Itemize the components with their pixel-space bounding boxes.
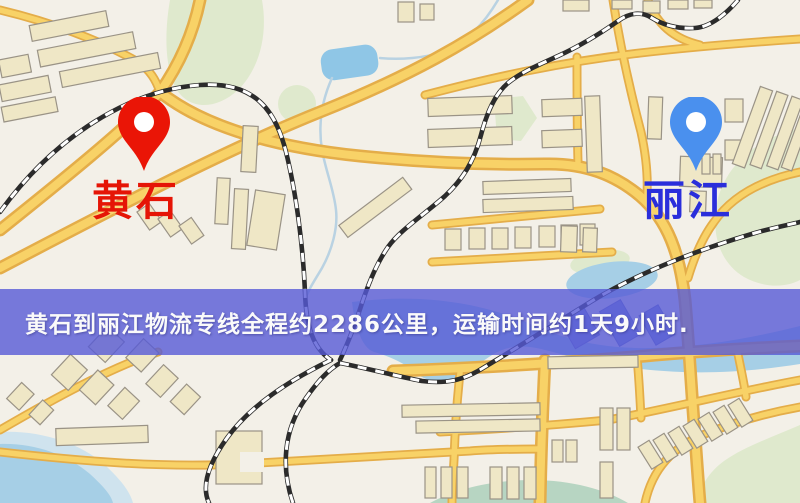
destination-pin-hole bbox=[686, 112, 706, 132]
destination-pin-body bbox=[670, 97, 722, 171]
destination-city-label: 丽江 bbox=[643, 180, 733, 222]
origin-pin-body bbox=[118, 97, 170, 171]
origin-city-label: 黄石 bbox=[92, 181, 180, 222]
map-canvas[interactable]: 黄石 丽江 黄石到丽江物流专线全程约2286公里，运输时间约1天9小时. bbox=[0, 0, 800, 503]
origin-pin-icon[interactable] bbox=[115, 97, 173, 171]
route-info-banner: 黄石到丽江物流专线全程约2286公里，运输时间约1天9小时. bbox=[0, 289, 800, 355]
map-art bbox=[0, 0, 800, 503]
route-info-text: 黄石到丽江物流专线全程约2286公里，运输时间约1天9小时. bbox=[0, 305, 689, 339]
origin-pin-hole bbox=[134, 112, 154, 132]
destination-pin-icon[interactable] bbox=[667, 97, 725, 171]
